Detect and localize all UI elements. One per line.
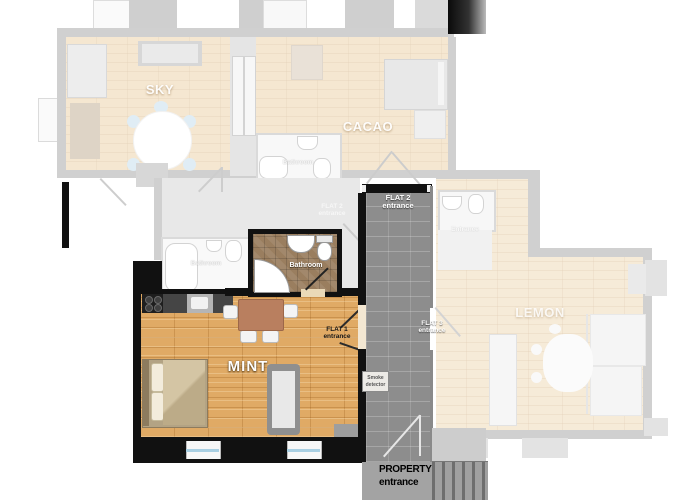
dining-table	[238, 299, 284, 331]
window-glass-line	[186, 449, 219, 452]
wall-segment	[358, 193, 366, 305]
wall-segment	[358, 349, 366, 463]
window-glass-line	[287, 449, 320, 452]
door-opening	[362, 185, 366, 192]
wall-segment	[62, 182, 69, 248]
dining-chair	[262, 330, 279, 343]
floor-plan: Smoke detector SKY CACAO LEMON MINT Bath…	[0, 0, 700, 500]
stove-burner	[154, 304, 162, 312]
toilet	[317, 242, 332, 261]
sofa-cushion	[272, 371, 295, 428]
service-box: Smoke detector	[362, 371, 389, 392]
stove-burner	[145, 304, 153, 312]
stair-landing	[432, 428, 486, 461]
dining-chair	[240, 330, 257, 343]
wall-segment	[334, 424, 359, 437]
bed-headboard	[142, 359, 149, 426]
service-box-label: detector	[363, 382, 388, 389]
stove-burner	[145, 296, 153, 304]
wall-segment	[141, 289, 233, 294]
bed-mattress	[163, 360, 205, 425]
kitchen-sink-basin	[191, 297, 208, 309]
door-opening	[301, 289, 325, 297]
door-swing	[419, 415, 421, 456]
stove-burner	[154, 296, 162, 304]
stairs	[432, 461, 488, 500]
wall-segment	[430, 186, 433, 308]
wall-segment	[133, 437, 365, 463]
dining-chair	[283, 304, 298, 318]
wall-segment	[448, 0, 486, 34]
door-opening	[358, 305, 366, 349]
property-entrance-floor	[362, 462, 432, 500]
dining-chair	[223, 305, 238, 319]
wall-segment	[362, 184, 432, 193]
highlighted-layer: Smoke detector	[0, 0, 700, 500]
